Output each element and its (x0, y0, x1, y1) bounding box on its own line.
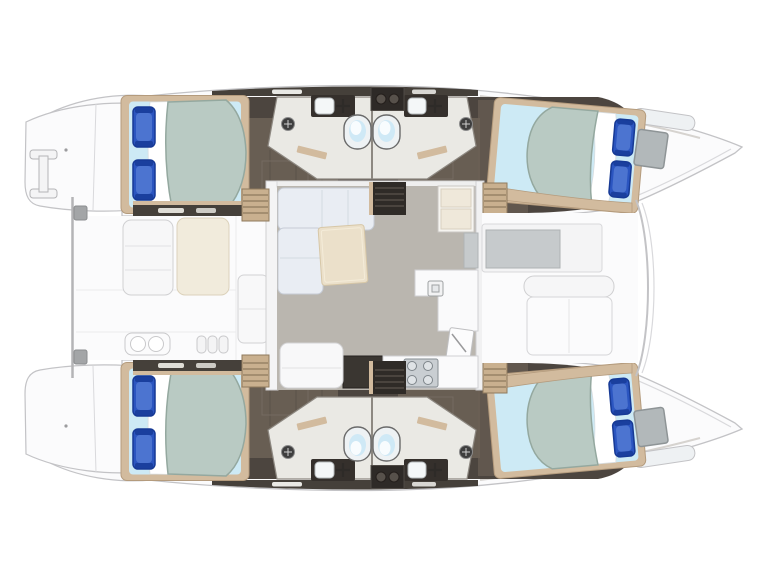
davit-clip (74, 206, 87, 220)
duvet (166, 100, 246, 208)
cockpit-bench-aft-wall (238, 275, 268, 343)
cockpit-bench-white (123, 220, 173, 295)
toilet (344, 115, 371, 149)
catamaran-floorplan (0, 0, 768, 576)
forward-cockpit (482, 200, 654, 376)
cockpit-cushion-cream (177, 218, 229, 295)
salon-table (318, 224, 368, 285)
aft-steps (242, 189, 269, 221)
pillow (133, 107, 155, 147)
anchor-locker (482, 224, 602, 272)
vanity-sink (404, 95, 448, 117)
front-wall-window (464, 233, 478, 268)
toilet (373, 115, 400, 149)
pillow (612, 119, 635, 157)
bow-hatch (634, 129, 669, 169)
aft-cabin-berth (121, 96, 249, 214)
galley-sink (428, 281, 443, 296)
catamaran-floorplan-page (0, 0, 768, 576)
shower-head-icon (460, 118, 473, 131)
salon-chaise (280, 343, 343, 388)
pillow (609, 161, 632, 199)
dark-companionway (369, 182, 406, 215)
drain-dot (64, 424, 67, 427)
forward-bench-seat (524, 276, 614, 355)
shower-head-icon (282, 118, 295, 131)
aft-cockpit (73, 197, 269, 378)
stove-4-burner (404, 359, 438, 387)
cockpit-sink-module (125, 333, 170, 355)
drain-dot (64, 148, 67, 151)
step-cushions (197, 336, 228, 353)
forward-steps (483, 183, 507, 214)
vanity-sink (311, 95, 355, 117)
technical-locker (371, 88, 404, 111)
fridge-cabinet (438, 186, 474, 232)
hull-bathrooms (268, 88, 476, 180)
pillow (133, 160, 155, 200)
davit-clip (74, 350, 87, 364)
